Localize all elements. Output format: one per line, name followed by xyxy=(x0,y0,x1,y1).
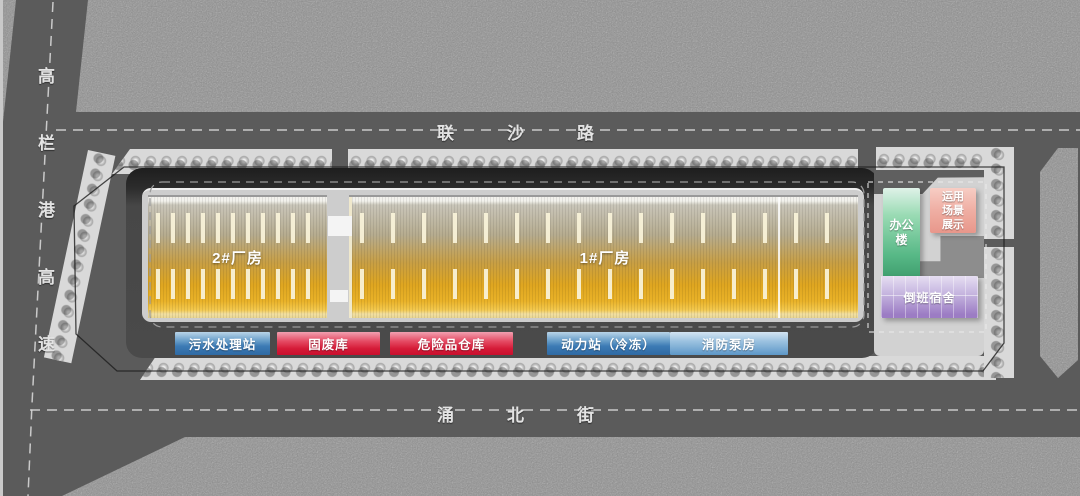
road-char: 高 xyxy=(38,62,55,87)
office-label: 办公楼 xyxy=(889,218,915,248)
road-char: 北 xyxy=(507,401,524,426)
road-char: 栏 xyxy=(38,129,55,154)
factory-2-label: 2#厂房 xyxy=(148,197,327,318)
road-char: 联 xyxy=(437,119,454,144)
image-left-border xyxy=(0,0,3,496)
road-char: 高 xyxy=(38,263,55,288)
road-char: 路 xyxy=(577,119,594,144)
building-factory-2: 2#厂房 xyxy=(148,197,327,318)
display-label-line: 展示 xyxy=(942,218,964,232)
tree-band-right-upper xyxy=(984,147,1014,239)
facility-power-station: 动力站（冷冻） xyxy=(547,332,670,355)
facility-solid-waste: 固废库 xyxy=(277,332,380,355)
display-label-line: 运用 xyxy=(942,190,964,204)
display-label-line: 场景 xyxy=(942,204,964,218)
building-shift-dormitory: 倒班宿舍 xyxy=(881,276,978,318)
building-scene-display: 运用 场景 展示 xyxy=(930,188,976,233)
tree-band-bottom xyxy=(140,356,996,380)
facility-fire-pump-room: 消防泵房 xyxy=(670,332,788,355)
building-office: 办公楼 xyxy=(883,188,920,278)
facility-hazardous-warehouse: 危险品仓库 xyxy=(390,332,513,355)
factory-1-label: 1#厂房 xyxy=(352,197,858,318)
road-char: 沙 xyxy=(507,119,524,144)
link-bridge xyxy=(328,216,352,236)
facility-sewage-treatment: 污水处理站 xyxy=(175,332,270,355)
road-char: 速 xyxy=(38,330,55,355)
building-factory-1: 1#厂房 xyxy=(349,197,858,318)
link-bridge xyxy=(330,290,348,302)
road-char: 街 xyxy=(577,401,594,426)
road-char: 涌 xyxy=(437,401,454,426)
tree-band-top-campus xyxy=(876,147,996,172)
tree-band-right-lower xyxy=(984,247,1014,378)
dormitory-label: 倒班宿舍 xyxy=(903,289,955,306)
site-plan: 2#厂房 1#厂房 污水处理站 固废库 危险品仓库 动力站（冷冻） 消防泵房 办… xyxy=(0,0,1080,496)
road-name-gaolangang-expressway: 高 栏 港 高 速 xyxy=(38,62,55,355)
road-name-liansha-road: 联 沙 路 xyxy=(437,119,594,144)
road-char: 港 xyxy=(38,196,55,221)
road-name-yongbei-street: 涌 北 街 xyxy=(437,401,594,426)
